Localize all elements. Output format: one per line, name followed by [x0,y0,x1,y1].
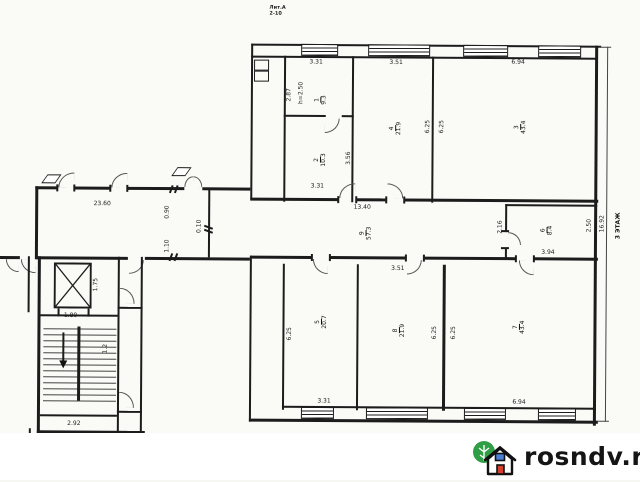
dimension-line [605,47,608,422]
dimension-label: 2.16 [497,220,504,233]
dimension-label: 3.31 [317,397,330,404]
wall [505,204,507,232]
dimension-line [599,47,611,48]
stamp-line: 2-10 [269,11,285,17]
wall-tick [533,255,535,262]
wall-tick [337,196,339,203]
dimension-label: 6.94 [511,59,524,66]
door-arc [111,173,127,188]
wall-tick [385,196,387,203]
dimension-label: 6.25 [450,326,457,339]
wall-tick [311,254,313,261]
dimension-label: 2.50 [586,219,593,232]
window-symbol [463,45,508,57]
wall [442,265,446,411]
stair-arrow-head [59,360,67,368]
wall [283,56,286,202]
door-arc [119,392,134,408]
door-arc [508,232,521,245]
door-arc [339,183,355,198]
wall [534,257,598,260]
door-arc [313,259,328,274]
window-symbol [464,408,506,420]
wall-tick [403,197,405,204]
logo-window [496,454,505,461]
vent-symbol [171,167,191,176]
wall-tick [515,255,517,262]
room-label: 210.3 [314,153,327,166]
room-label: 520.7 [315,315,328,328]
dimension-label: 3.56 [345,151,352,164]
dimension-label: 3.31 [311,182,324,189]
room-label: 343.4 [514,121,527,134]
wall-tick [58,308,60,316]
vent-shaft [254,71,269,82]
wall [208,189,210,257]
dimension-label: 0.10 [196,220,203,233]
door-arc [325,118,340,133]
wall [249,256,252,422]
wall [140,257,143,434]
dimension-label: 6.25 [438,120,445,133]
wall [431,57,434,203]
dimension-label: 3.51 [389,59,402,66]
dimension-label: 1.80 [64,312,77,319]
wall [41,314,118,316]
room-label: 957.3 [360,227,373,240]
room-label: 821.9 [393,324,406,337]
wall-tick [88,309,90,317]
rosndv-logo [472,436,518,476]
dimension-label: 2.87 [285,88,292,101]
vent-shaft [254,60,269,71]
wall [145,257,250,261]
wall [424,257,516,261]
wall [505,248,507,259]
room-label: 68.4 [541,226,554,236]
wall [37,256,41,433]
dimension-label: 3.31 [309,58,322,65]
wall-tick [329,254,331,261]
dimension-label: 6.25 [431,326,438,339]
door-arc [184,176,193,187]
door-arc [519,260,534,275]
window-symbol [301,44,338,56]
wall [117,411,142,413]
wall [35,186,38,259]
window-symbol [538,408,576,420]
wall-tick [73,184,75,191]
dimension-label: 6.94 [512,399,525,406]
wall [342,115,354,117]
window-symbol [538,45,581,57]
stair-stringer [77,327,80,401]
dimension-label: 3.51 [391,265,404,272]
door-arc [193,176,202,187]
floor-plan-drawing: Лит.А 2-10 [0,0,640,482]
dimension-label: 0.90 [164,205,171,218]
wall-tick [126,185,128,192]
dimension-label: 2.92 [67,420,80,427]
wall [404,199,598,203]
dimension-label: 3.94 [541,249,554,256]
wall [330,256,406,259]
wall [282,264,285,410]
wall [28,256,30,312]
wall-tick [109,185,111,192]
wall [593,46,598,426]
floor-plan: Лит.А 2-10 [0,0,640,480]
logo-door [497,465,504,474]
dimension-label: 1.75 [92,278,99,291]
dimension-label: 16.92 [599,215,606,232]
wall [40,414,117,416]
elevator-shaft [54,262,92,308]
wall [35,186,57,189]
door-arc [387,183,403,198]
wall [356,264,359,410]
dimension-label: 23.60 [94,200,111,207]
room-label: 19.3 [314,95,327,105]
room-note: h=2.50 [297,82,304,104]
window-symbol [366,407,428,419]
wall [284,115,326,117]
wall [356,198,386,201]
wall [351,56,354,202]
wall-tick [423,255,425,262]
door-arc [120,288,135,304]
window-symbol [301,407,334,419]
staircase [1,0,640,2]
wall [250,198,338,202]
wall [250,44,253,200]
door-arc [6,259,19,272]
dimension-line [597,421,609,422]
wall [250,256,312,259]
floor-label: 3 ЭТАЖ [615,212,622,239]
room-label: 743.4 [513,321,526,334]
dimension-label: 13.40 [354,204,371,211]
wall [505,204,597,207]
dimension-label: 6.25 [286,327,293,340]
dimension-label: 1.2 [102,344,109,354]
dimension-label: 1.10 [163,239,170,252]
wall-tick [501,247,509,249]
wall-tick [405,255,407,262]
title-stamp: Лит.А 2-10 [269,6,285,17]
door-arc [407,260,422,275]
wall-tick [56,184,58,191]
wall [118,307,143,309]
dimension-label: 6.25 [424,120,431,133]
wall [36,256,128,260]
wall [74,186,110,189]
wall-tick [355,196,357,203]
window-symbol [368,44,430,56]
room-label: 421.9 [389,122,402,135]
brand-text: rosndv.ru [524,442,640,471]
watermark: rosndv.ru [0,433,640,480]
stair-direction-arrow [62,332,64,362]
